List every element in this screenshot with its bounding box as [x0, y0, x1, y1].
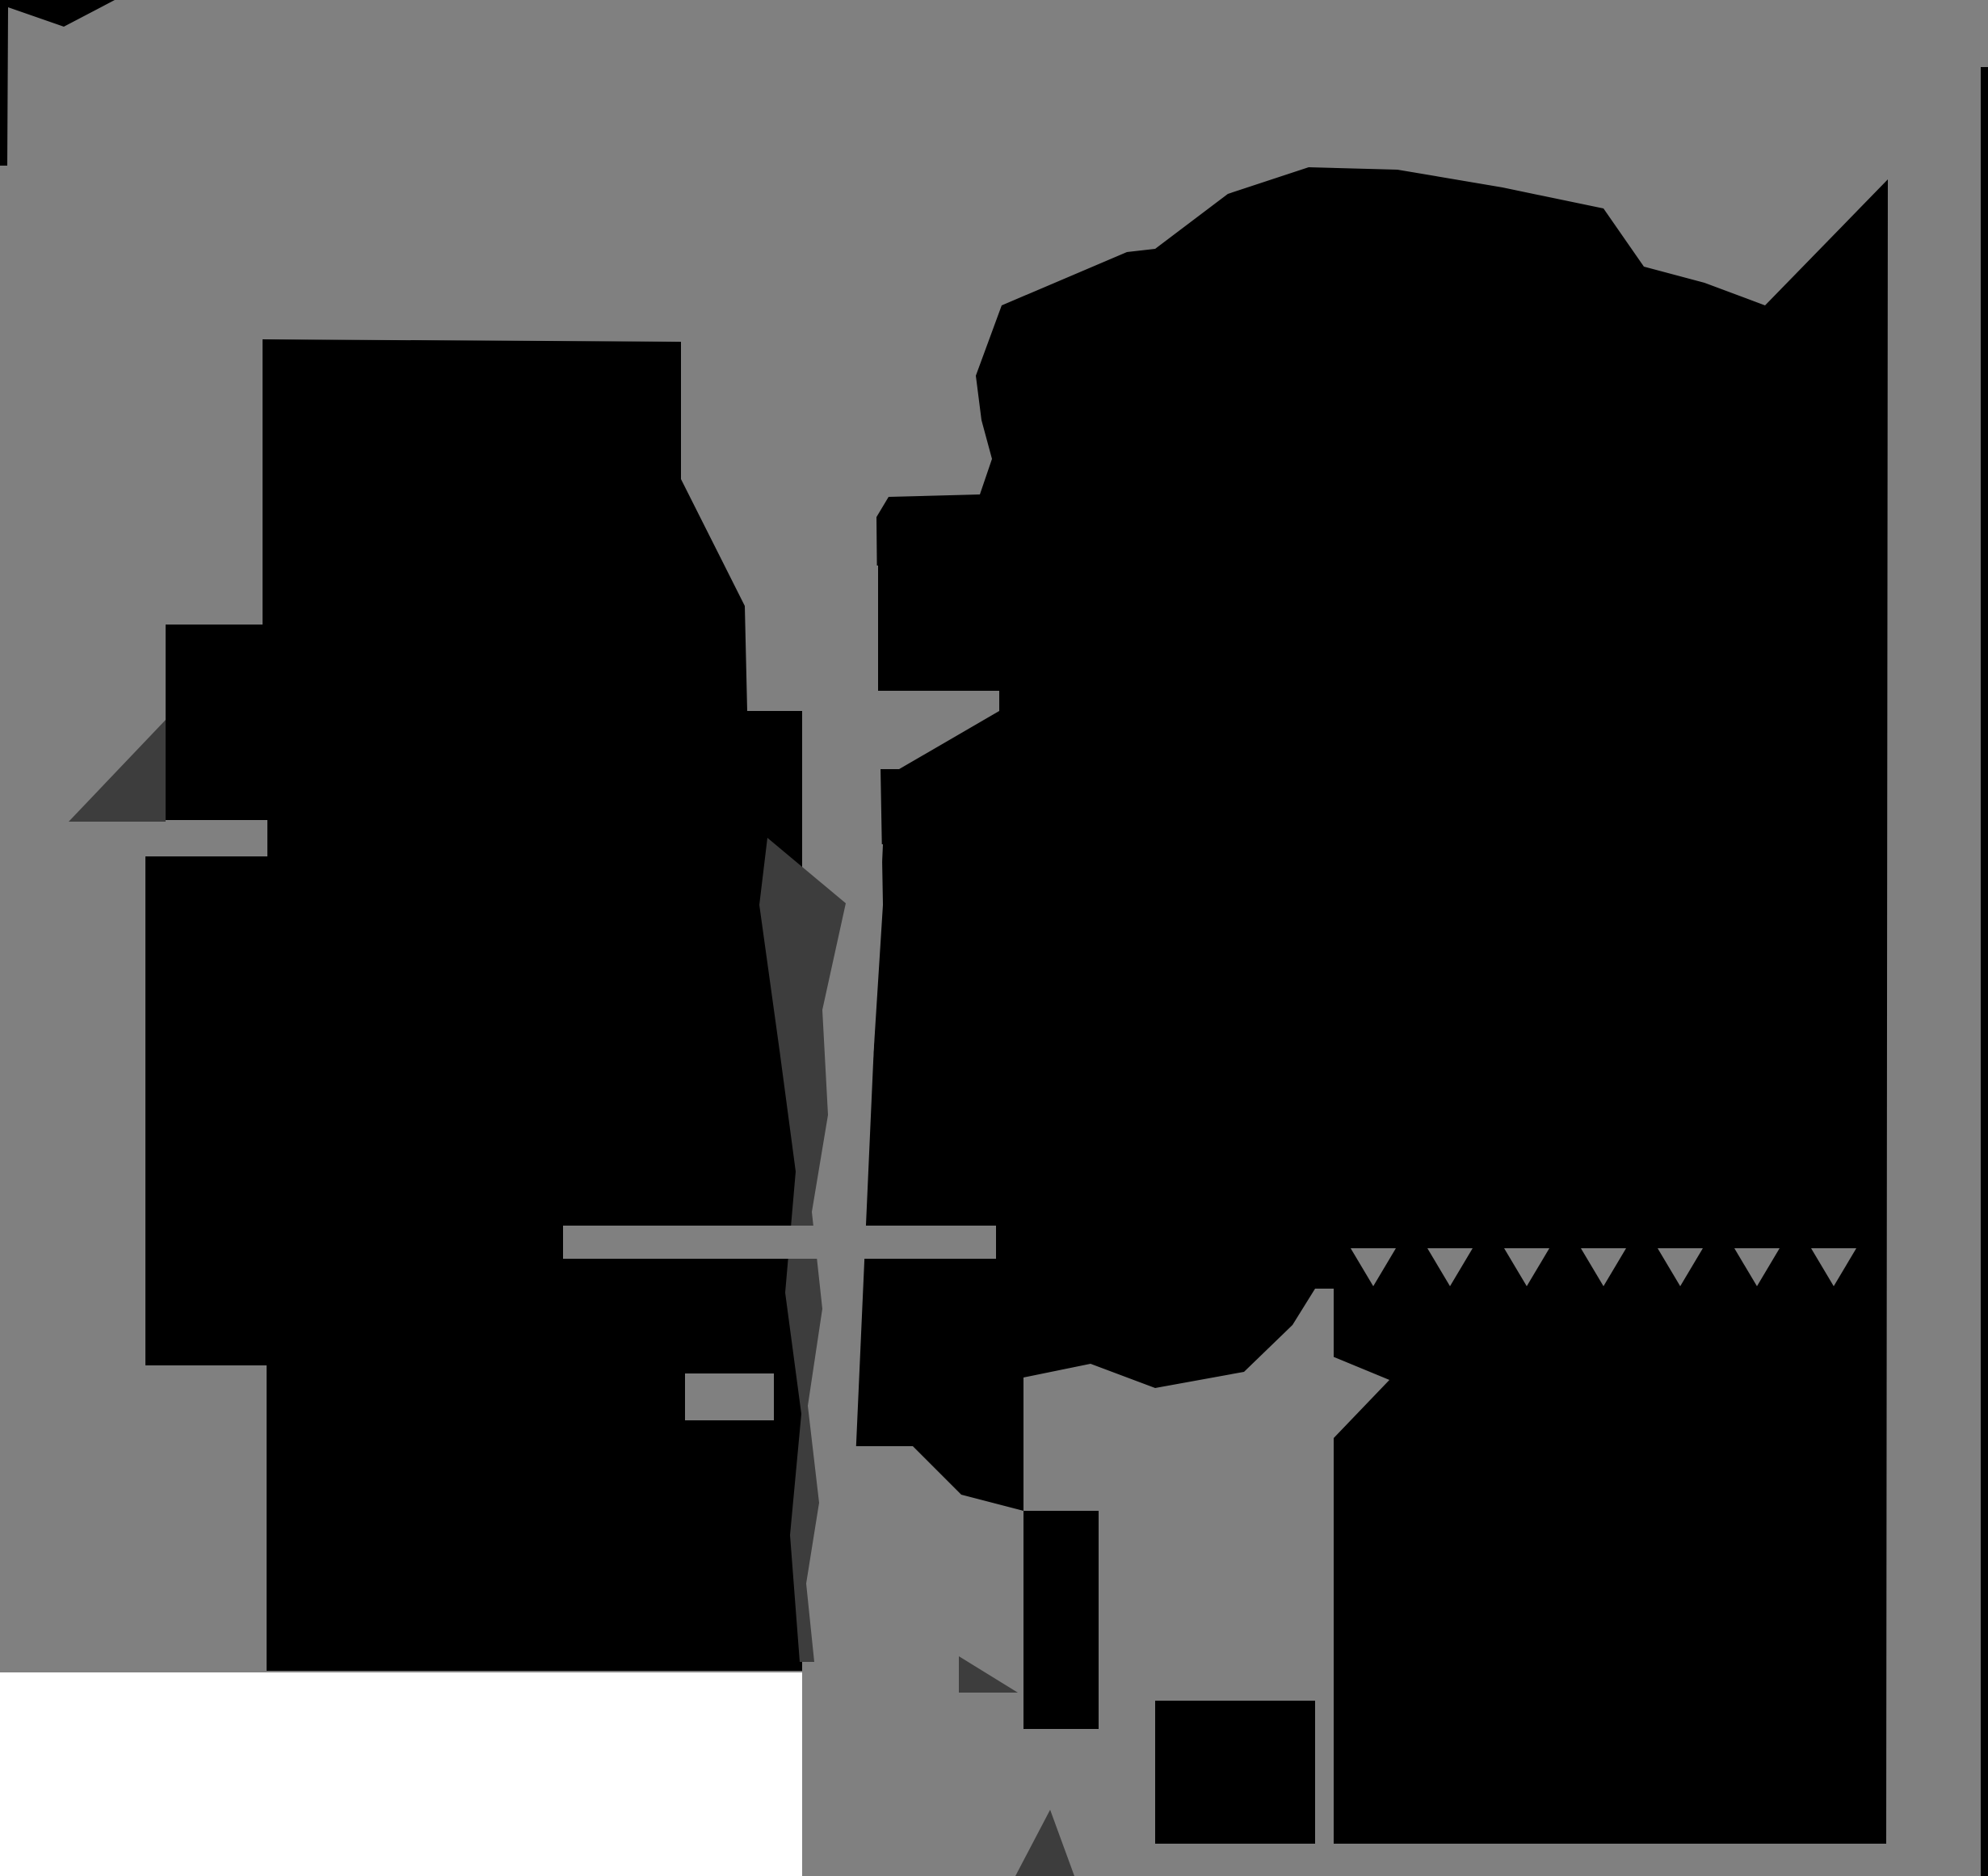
black-patch-notch: [1023, 1511, 1099, 1729]
abstract-image-canvas: [0, 0, 1988, 1876]
white-bottom-strip: [0, 1672, 802, 1876]
channel-block: [725, 566, 878, 711]
abstract-image: [0, 0, 1988, 1876]
right-edge-sliver: [1981, 67, 1988, 1876]
channel-arm: [747, 691, 999, 711]
black-patch-bottom: [1155, 1701, 1315, 1844]
small-bar: [685, 1373, 774, 1420]
cross-arm: [563, 1226, 996, 1259]
bottom-center-gray-strip: [802, 1678, 1023, 1876]
